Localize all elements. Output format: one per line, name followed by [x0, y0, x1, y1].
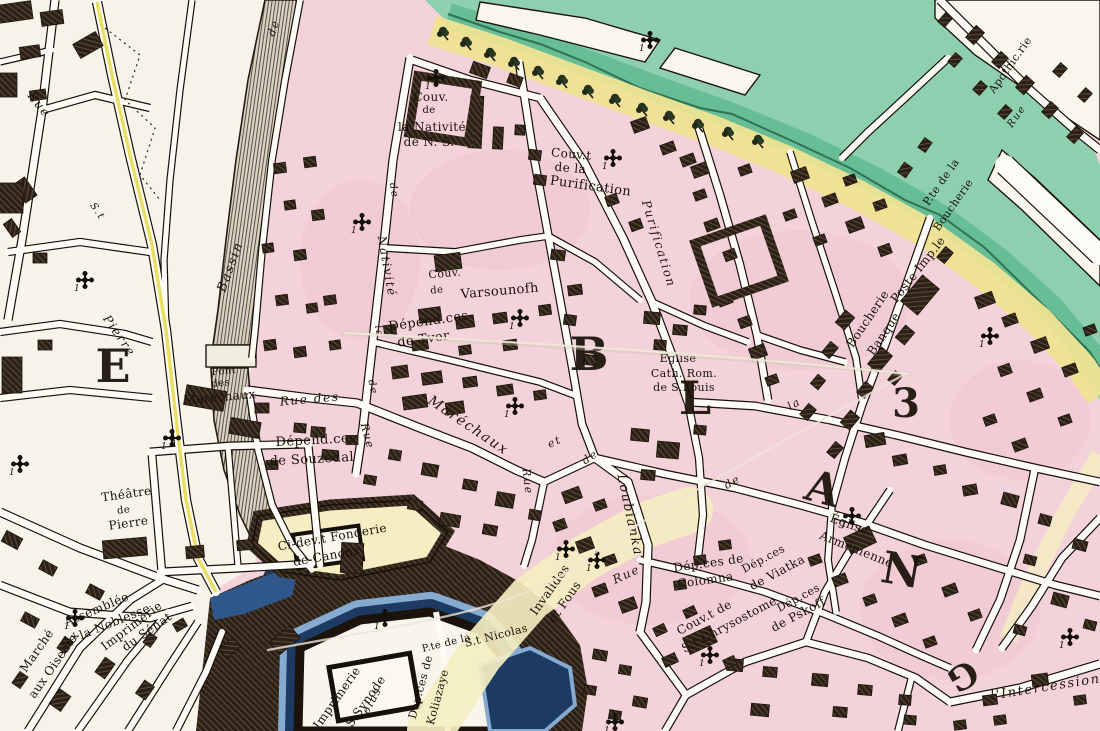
- building: [306, 303, 318, 313]
- building: [311, 209, 324, 221]
- building: [19, 45, 40, 60]
- building: [833, 706, 848, 717]
- building: [329, 340, 341, 350]
- place-label: de N. S.: [404, 135, 455, 149]
- building: [993, 715, 1006, 726]
- building: [492, 312, 507, 324]
- building: [533, 174, 546, 186]
- place-label: Couv.: [413, 90, 448, 104]
- building: [631, 428, 650, 442]
- place-label: des: [211, 377, 231, 390]
- building: [363, 475, 376, 486]
- building: [592, 649, 608, 661]
- building: [858, 684, 873, 695]
- church-cross-numeral: 1: [509, 322, 515, 332]
- building: [904, 715, 917, 725]
- building: [458, 345, 471, 356]
- historic-map-scan: 111111111111111111 EBLAN3G Couv.dela Nat…: [0, 0, 1100, 731]
- building: [567, 284, 582, 296]
- building: [694, 305, 707, 315]
- building: [962, 484, 978, 496]
- building: [673, 324, 688, 335]
- map-canvas: 111111111111111111 EBLAN3G Couv.dela Nat…: [0, 0, 1100, 731]
- building: [641, 469, 656, 480]
- place-label: de: [430, 284, 444, 296]
- building: [0, 73, 17, 97]
- church-cross-numeral: 1: [351, 226, 357, 236]
- building: [492, 127, 503, 149]
- building: [40, 10, 64, 27]
- building: [933, 465, 946, 476]
- district-letter: 3: [892, 380, 920, 427]
- church-cross-numeral: 1: [161, 442, 167, 452]
- building: [618, 665, 631, 676]
- place-label: Cath. Rom.: [651, 367, 717, 380]
- building: [407, 499, 423, 511]
- church-cross-numeral: 1: [1059, 641, 1065, 651]
- building: [402, 394, 428, 410]
- building: [583, 685, 596, 696]
- building: [293, 249, 306, 261]
- building: [718, 540, 731, 551]
- church-cross-numeral: 1: [586, 564, 592, 574]
- building: [303, 156, 316, 168]
- church-cross-numeral: 1: [639, 44, 645, 54]
- building: [899, 694, 912, 705]
- building: [462, 376, 477, 388]
- building: [694, 425, 707, 435]
- building: [293, 346, 306, 358]
- church-cross-numeral: 1: [9, 468, 15, 478]
- building: [462, 479, 478, 491]
- place-label: de S.Louis: [653, 381, 715, 394]
- building: [496, 384, 513, 396]
- church-cross-numeral: 1: [602, 162, 608, 172]
- building: [391, 365, 409, 379]
- building: [654, 339, 667, 350]
- building: [263, 339, 276, 351]
- building: [812, 673, 829, 686]
- building: [0, 183, 23, 213]
- building: [656, 441, 679, 459]
- building: [515, 125, 526, 136]
- building: [763, 666, 778, 677]
- building: [482, 524, 498, 536]
- building: [632, 696, 648, 708]
- building: [644, 311, 661, 324]
- building: [186, 545, 205, 559]
- church-cross-numeral: 1: [74, 284, 80, 294]
- building: [275, 294, 288, 306]
- church-cross-numeral: 1: [504, 410, 510, 420]
- building: [237, 539, 254, 550]
- building: [421, 463, 439, 478]
- building: [550, 249, 565, 261]
- place-label: la Nativité: [398, 120, 466, 134]
- building: [262, 243, 274, 253]
- church-cross-numeral: 1: [699, 659, 705, 669]
- building: [538, 304, 551, 316]
- building: [495, 492, 515, 509]
- building: [323, 295, 336, 306]
- church-cross-numeral: 1: [604, 726, 610, 731]
- building: [1073, 695, 1086, 706]
- church-cross-numeral: 1: [979, 340, 985, 350]
- building: [273, 162, 286, 174]
- place-label: Pont: [211, 365, 236, 378]
- building: [294, 423, 307, 433]
- building: [38, 340, 52, 350]
- building: [102, 537, 147, 559]
- building: [2, 357, 22, 393]
- building: [533, 390, 546, 401]
- building: [953, 720, 966, 731]
- district-letter: B: [570, 327, 609, 381]
- building: [284, 200, 296, 210]
- building: [388, 449, 402, 461]
- building: [421, 371, 442, 386]
- building: [892, 454, 908, 466]
- building: [751, 703, 770, 717]
- building: [563, 314, 576, 326]
- place-label: de: [422, 105, 435, 116]
- building: [528, 149, 541, 161]
- building: [33, 253, 47, 263]
- building: [255, 403, 269, 413]
- building: [528, 509, 542, 521]
